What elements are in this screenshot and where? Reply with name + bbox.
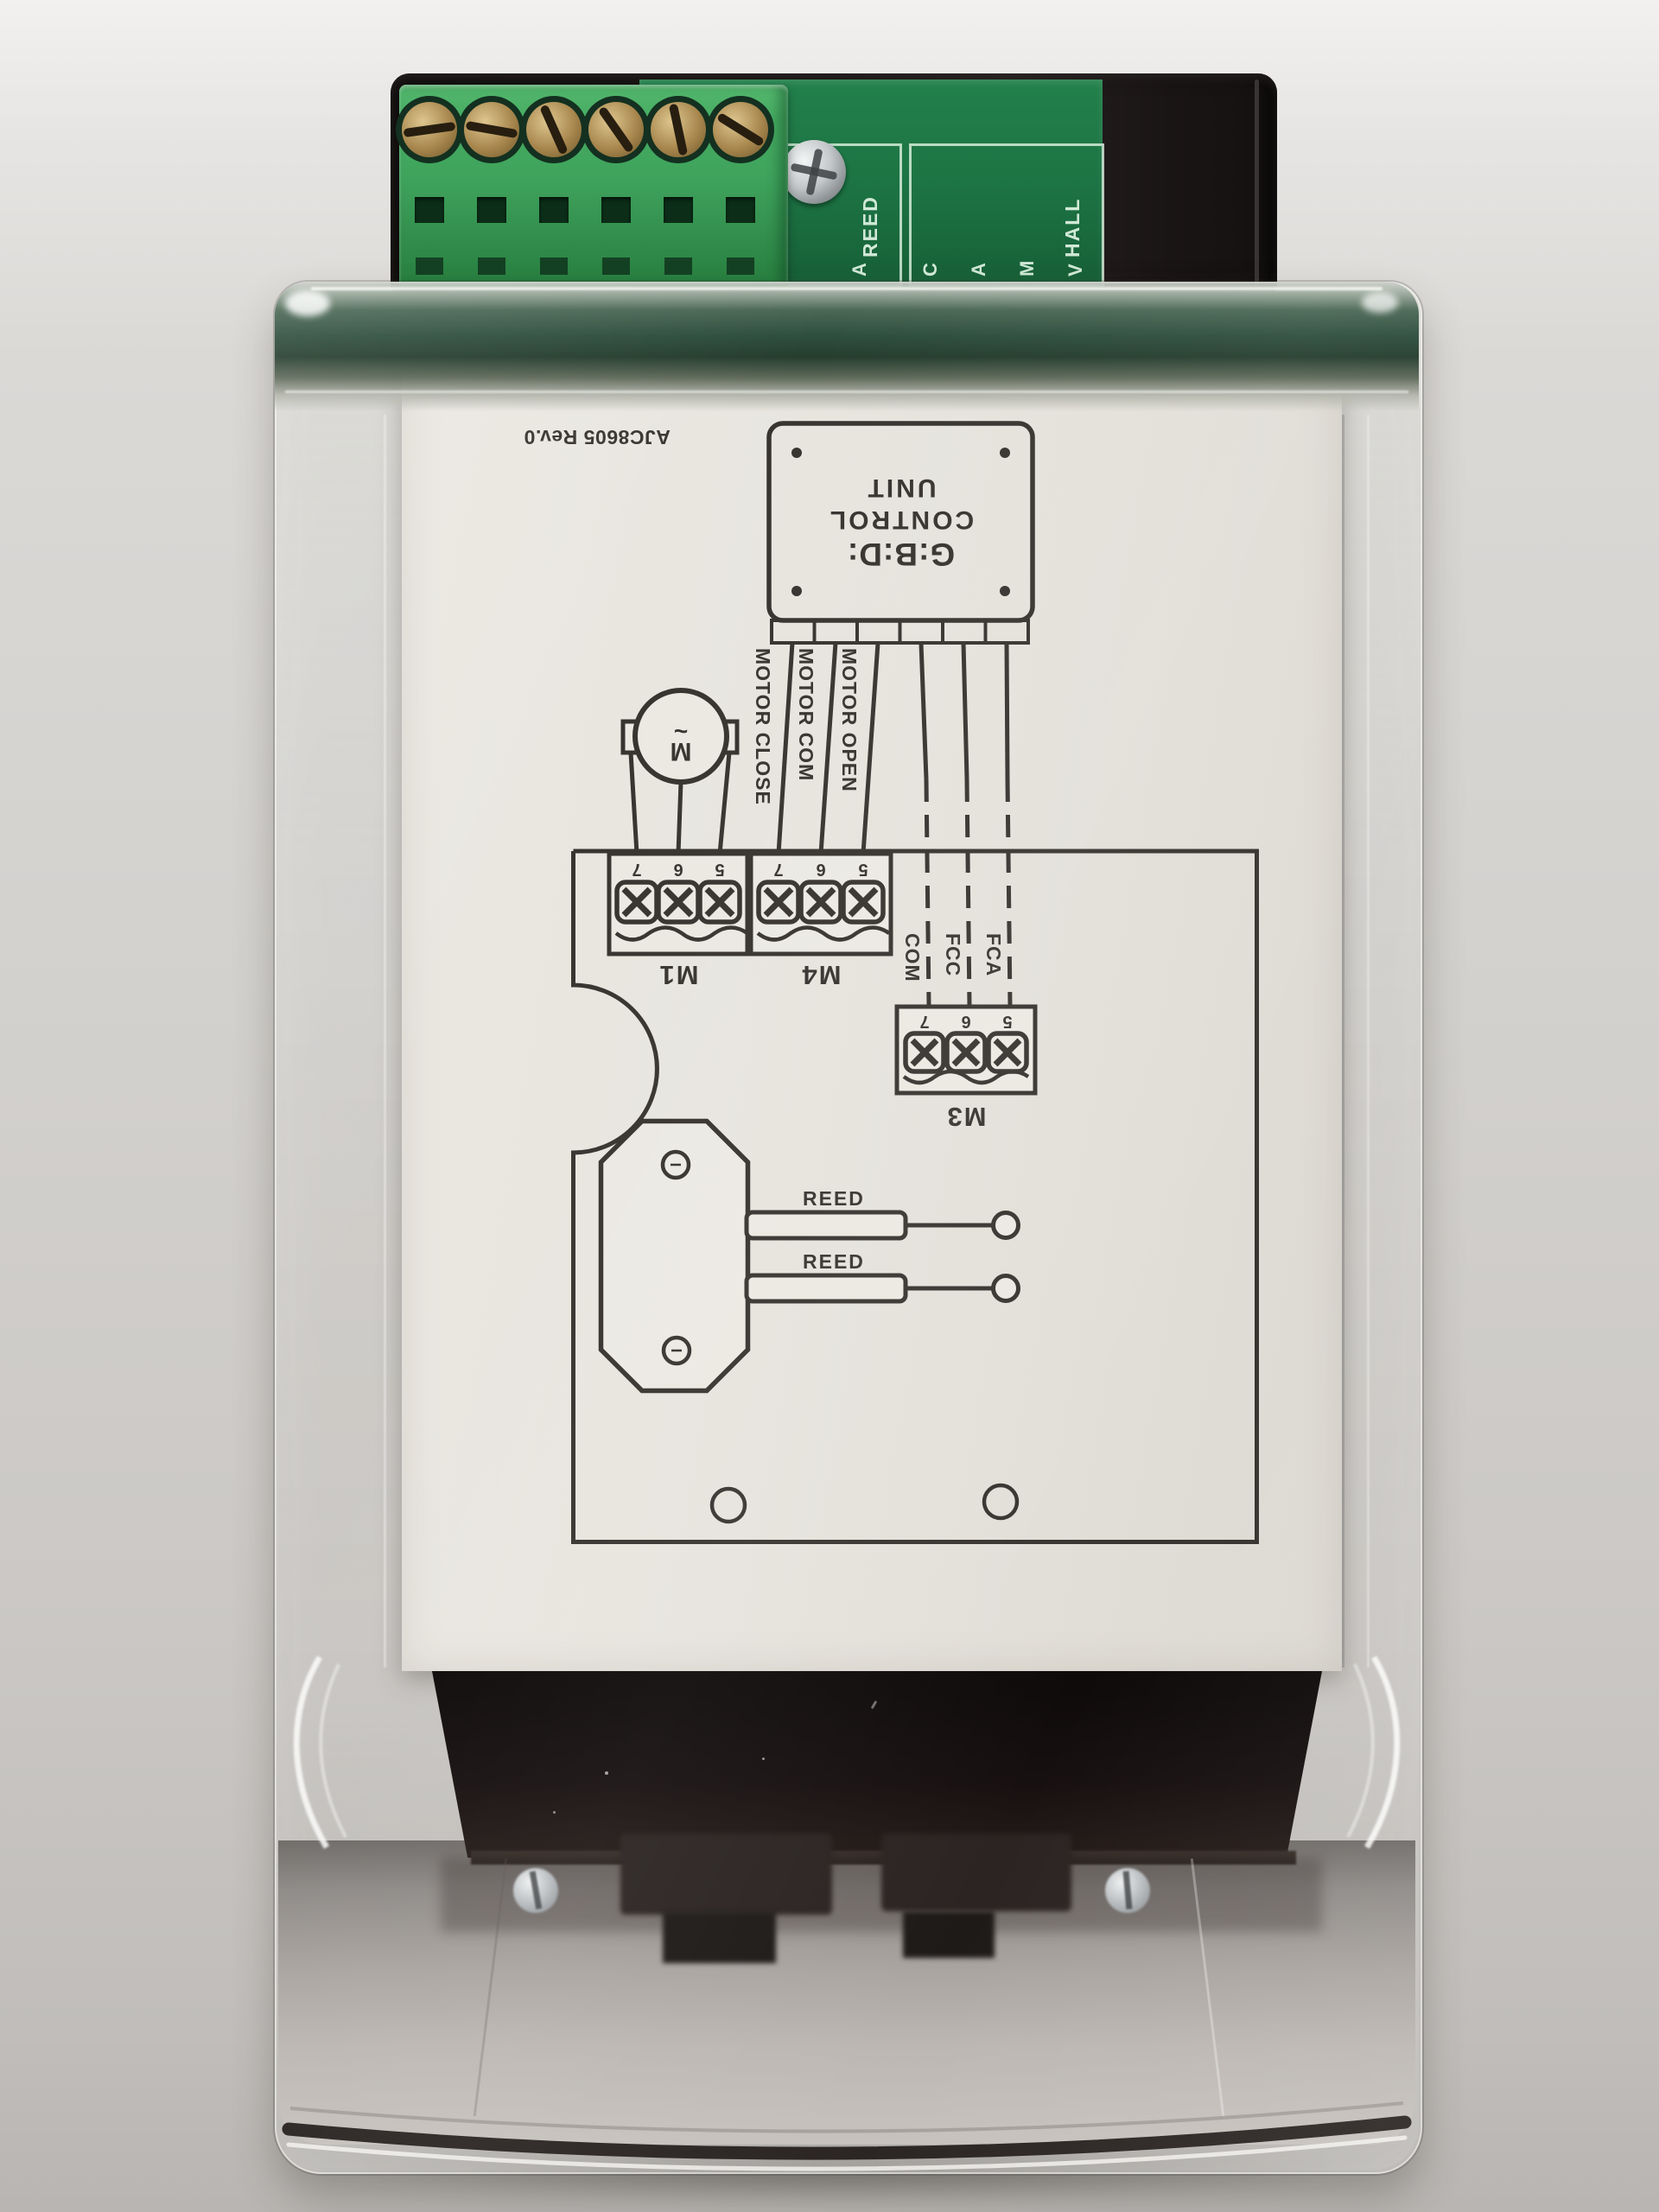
control-unit-label: G:B:D: CONTROL UNIT [769, 423, 1033, 620]
silkscreen-pin-c2: C [919, 254, 942, 276]
silkscreen-pin-a2: A [968, 254, 990, 276]
doc-code: AJC8605 Rev.0 [512, 425, 682, 448]
wiring-sheet-paper: AJC8605 Rev.0 G:B:D: CONTROL UNIT MOTOR … [402, 373, 1342, 1671]
housing-edge-highlight [1255, 79, 1259, 287]
wire-label-fca: FCA [982, 933, 1005, 1011]
m4-pin-6: 6 [810, 859, 831, 879]
m1-pin-5: 5 [709, 859, 730, 879]
connector-block-right [881, 1834, 1071, 1911]
terminal-hole-6 [726, 197, 755, 223]
terminal-hole-1 [415, 197, 444, 223]
m3-pin-5: 5 [997, 1011, 1018, 1031]
wire-label-motor-com: MOTOR COM [794, 648, 817, 855]
reed-switch-1 [747, 1212, 1019, 1238]
silkscreen-pin-a: A [849, 254, 871, 276]
terminal-hole-5 [664, 197, 693, 223]
mounting-hole-right [984, 1485, 1017, 1518]
terminal-slot-3 [540, 257, 568, 275]
terminal-slot-5 [664, 257, 692, 275]
silkscreen-reed-label: REED [859, 156, 882, 257]
wire-label-fcc: FCC [941, 933, 964, 1011]
wire-label-motor-open: MOTOR OPEN [837, 648, 861, 855]
terminal-hole-2 [477, 197, 506, 223]
m4-pin-7: 7 [768, 859, 789, 879]
brand-logo: G:B:D: [847, 537, 955, 573]
wire-label-com: COM [900, 933, 924, 1011]
m4-label: M4 [778, 959, 864, 990]
reed-label-2: REED [803, 1250, 865, 1274]
terminal-slot-2 [478, 257, 505, 275]
motor-tilde: ~ [656, 723, 706, 738]
wiring-diagram: AJC8605 Rev.0 G:B:D: CONTROL UNIT MOTOR … [402, 373, 1342, 1671]
reed-label-1: REED [803, 1187, 865, 1211]
connector-block-left [620, 1834, 832, 1915]
terminal-slot-1 [416, 257, 443, 275]
wire-label-motor-close: MOTOR CLOSE [751, 648, 774, 855]
m1-label: M1 [635, 959, 721, 990]
m3-label: M3 [923, 1101, 1009, 1132]
m4-pin-5: 5 [853, 859, 874, 879]
motor-letter: M ~ [656, 710, 706, 764]
m3-pin-7: 7 [914, 1011, 935, 1031]
magnet-bracket [601, 1122, 748, 1391]
m1-pin-7: 7 [626, 859, 647, 879]
reed-switch-2 [747, 1275, 1019, 1301]
m3-pin-6: 6 [956, 1011, 976, 1031]
terminal-hole-4 [601, 197, 631, 223]
connector-tab-left [663, 1911, 776, 1963]
connector-tab-right [903, 1911, 995, 1958]
silkscreen-hall-label: HALL [1061, 156, 1084, 257]
m1-pin-6: 6 [668, 859, 689, 879]
control-line: CONTROL [828, 504, 974, 537]
photo-scene: REED M C A HALL C A M V [0, 0, 1659, 2212]
control-unit-comb [772, 620, 1028, 643]
interior-black-box [432, 1671, 1322, 1858]
mounting-hole-left [712, 1489, 745, 1522]
silkscreen-pin-m2: M [1016, 254, 1039, 276]
terminal-slot-4 [602, 257, 630, 275]
terminal-slot-6 [727, 257, 754, 275]
silkscreen-pin-v: V [1065, 254, 1087, 276]
terminal-hole-3 [539, 197, 569, 223]
unit-line: UNIT [866, 472, 937, 505]
